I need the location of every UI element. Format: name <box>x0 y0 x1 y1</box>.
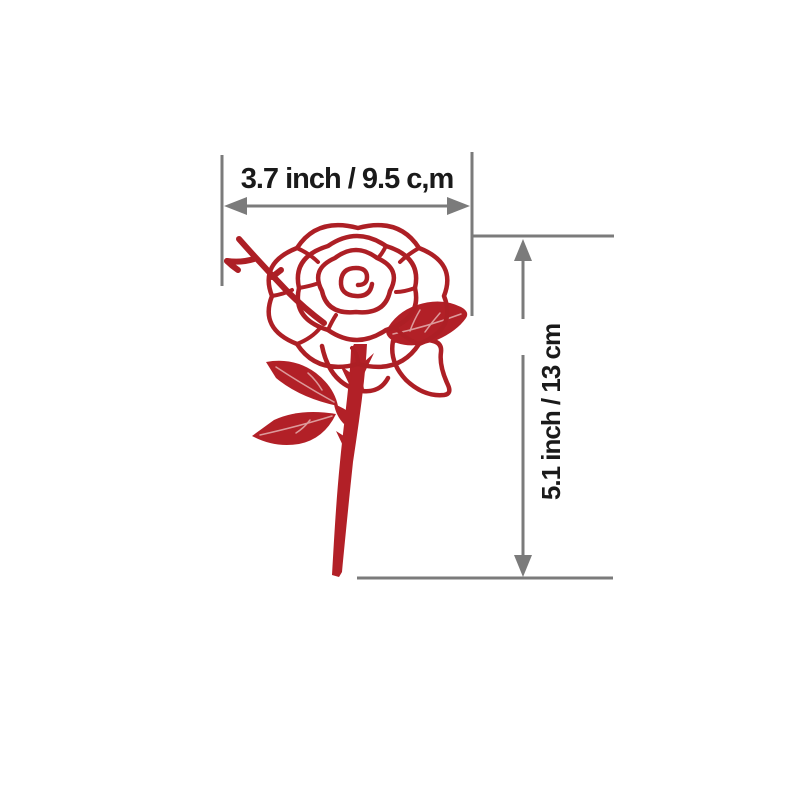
rose-outlined-leaf <box>392 339 449 396</box>
height-arrowhead-top <box>514 239 532 261</box>
height-dimension-label: 5.1 inch / 13 cm <box>535 302 567 522</box>
product-dimension-figure: 3.7 inch / 9.5 c,m 5.1 inch / 13 cm <box>0 0 800 800</box>
width-dimension-label: 3.7 inch / 9.5 c,m <box>222 163 472 196</box>
figure-artwork <box>0 0 800 800</box>
rose-thorn-branch <box>227 239 324 323</box>
width-arrowhead-right <box>447 197 470 215</box>
height-arrowhead-bottom <box>514 555 532 577</box>
rose-illustration <box>227 225 467 577</box>
height-dimension <box>357 236 614 578</box>
width-arrowhead-left <box>224 197 247 215</box>
